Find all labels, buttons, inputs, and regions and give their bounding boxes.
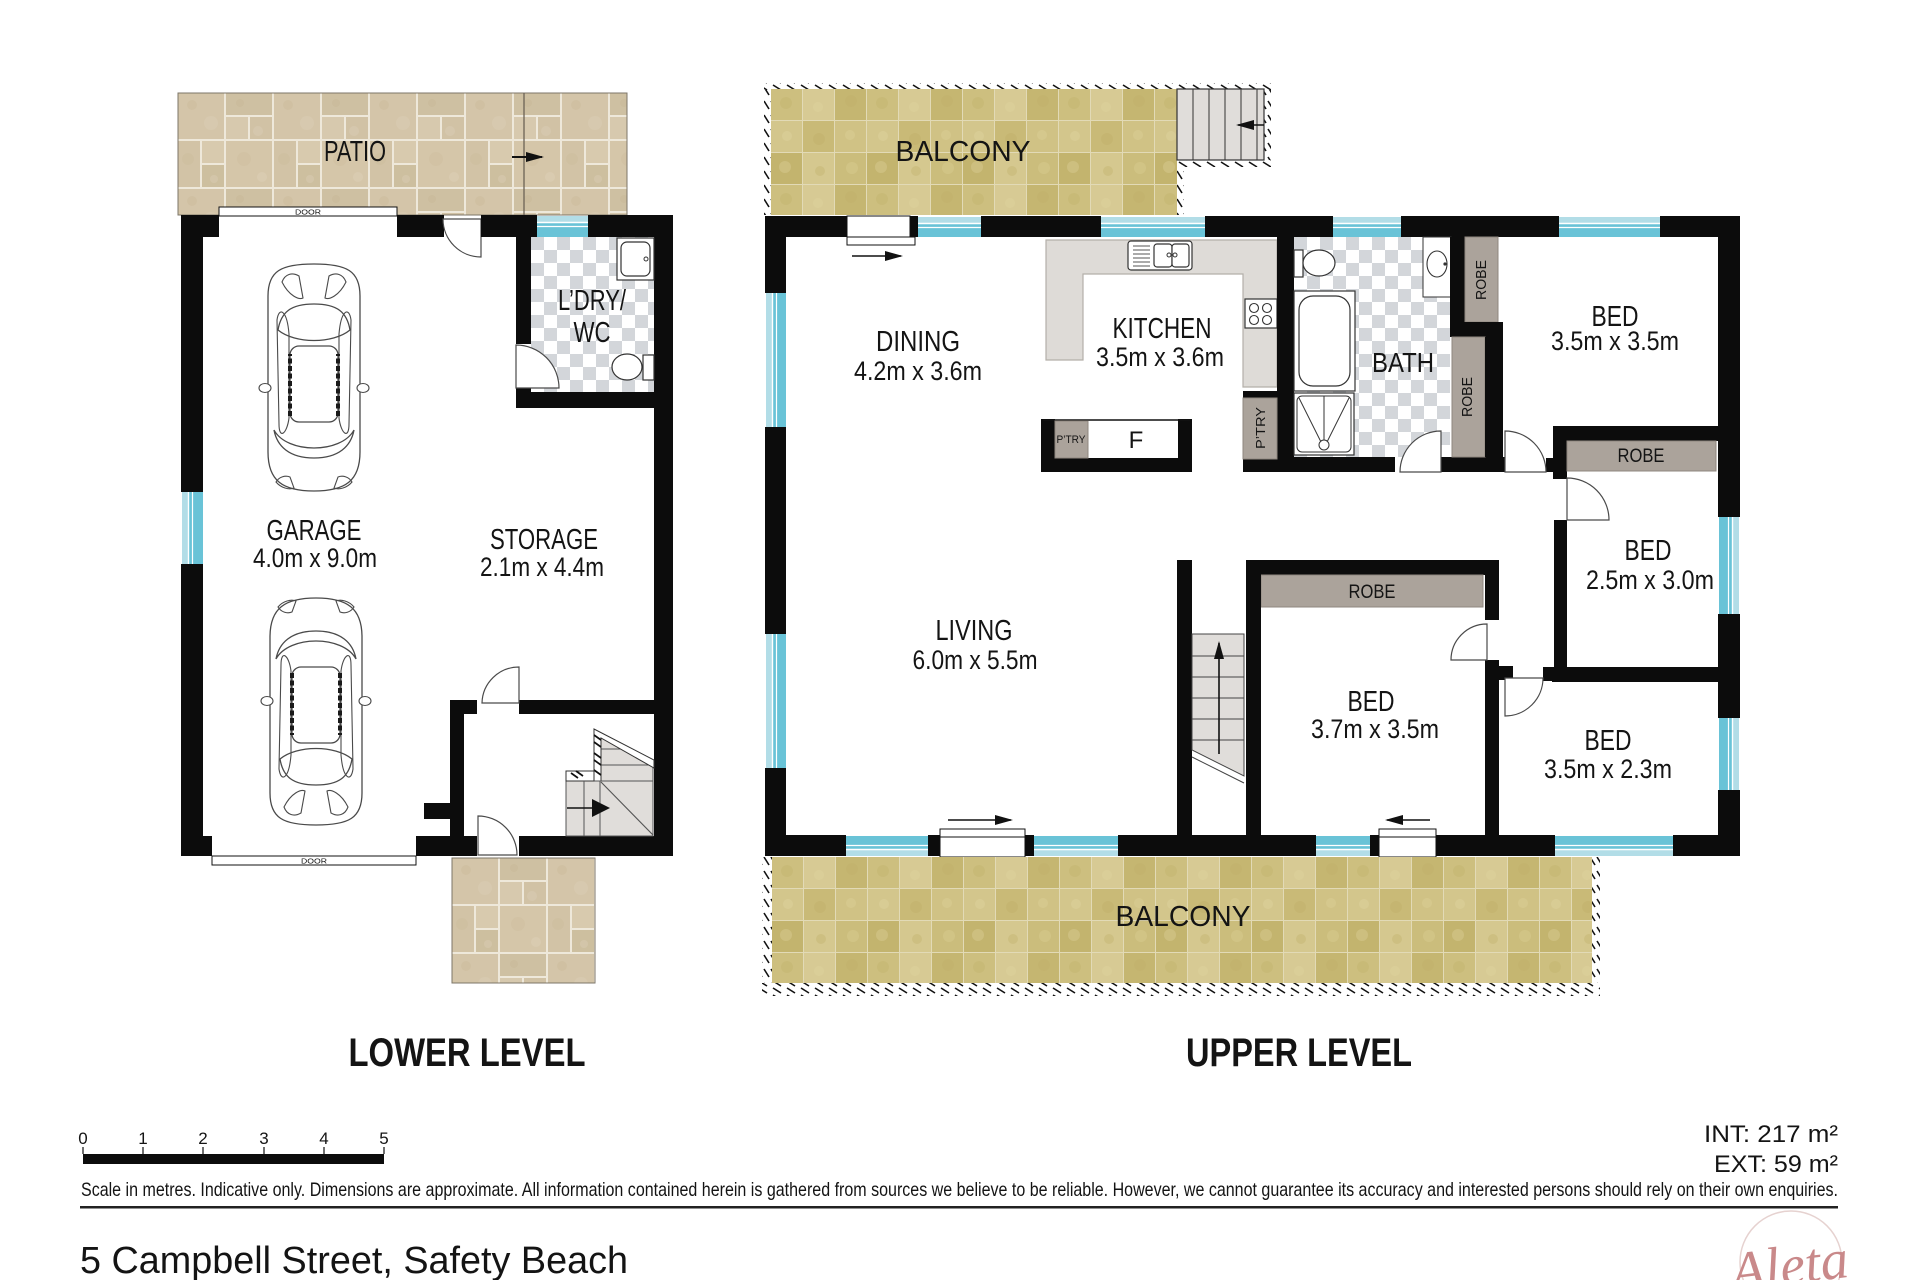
svg-text:UPPER LEVEL: UPPER LEVEL bbox=[1186, 1031, 1412, 1075]
svg-text:P’TRY: P’TRY bbox=[1253, 407, 1268, 449]
svg-text:4: 4 bbox=[319, 1129, 328, 1148]
svg-text:2.1m x 4.4m: 2.1m x 4.4m bbox=[480, 552, 604, 582]
svg-text:P’TRY: P’TRY bbox=[1057, 434, 1087, 446]
svg-text:1: 1 bbox=[138, 1129, 147, 1148]
svg-text:3.5m x 3.6m: 3.5m x 3.6m bbox=[1096, 342, 1224, 372]
svg-text:L’DRY/: L’DRY/ bbox=[558, 285, 627, 317]
svg-text:LOWER LEVEL: LOWER LEVEL bbox=[349, 1031, 586, 1075]
svg-text:BED: BED bbox=[1625, 535, 1672, 567]
svg-text:ROBE: ROBE bbox=[1473, 260, 1490, 300]
svg-text:BED: BED bbox=[1585, 725, 1632, 757]
svg-text:PATIO: PATIO bbox=[324, 136, 386, 168]
svg-text:KITCHEN: KITCHEN bbox=[1113, 313, 1212, 345]
svg-text:INT: 217 m²: INT: 217 m² bbox=[1704, 1121, 1838, 1148]
svg-text:DOOR: DOOR bbox=[295, 208, 322, 217]
svg-text:LIVING: LIVING bbox=[936, 615, 1013, 647]
svg-text:ROBE: ROBE bbox=[1459, 377, 1476, 417]
svg-text:DINING: DINING bbox=[876, 326, 960, 358]
svg-text:2: 2 bbox=[198, 1129, 207, 1148]
svg-text:6.0m x 5.5m: 6.0m x 5.5m bbox=[913, 645, 1038, 675]
svg-text:ROBE: ROBE bbox=[1349, 582, 1396, 603]
svg-text:BATH: BATH bbox=[1372, 347, 1434, 378]
svg-text:WC: WC bbox=[574, 317, 611, 349]
svg-text:3.5m x 2.3m: 3.5m x 2.3m bbox=[1544, 754, 1672, 784]
svg-text:2.5m x 3.0m: 2.5m x 3.0m bbox=[1586, 565, 1714, 595]
svg-text:BALCONY: BALCONY bbox=[896, 136, 1031, 168]
svg-text:4.0m x 9.0m: 4.0m x 9.0m bbox=[253, 543, 377, 573]
svg-text:0: 0 bbox=[78, 1129, 87, 1148]
svg-text:Scale in metres. Indicative on: Scale in metres. Indicative only. Dimens… bbox=[81, 1179, 1838, 1201]
svg-text:3: 3 bbox=[259, 1129, 268, 1148]
svg-text:ROBE: ROBE bbox=[1618, 446, 1665, 467]
svg-text:BALCONY: BALCONY bbox=[1116, 901, 1251, 933]
svg-text:DOOR: DOOR bbox=[301, 857, 328, 866]
svg-text:F: F bbox=[1129, 427, 1144, 454]
svg-text:5: 5 bbox=[379, 1129, 388, 1148]
svg-text:3.5m x 3.5m: 3.5m x 3.5m bbox=[1551, 326, 1679, 356]
svg-text:5 Campbell Street, Safety Beac: 5 Campbell Street, Safety Beach bbox=[80, 1240, 628, 1280]
svg-text:3.7m x 3.5m: 3.7m x 3.5m bbox=[1311, 714, 1439, 744]
svg-text:EXT: 59 m²: EXT: 59 m² bbox=[1714, 1151, 1838, 1178]
svg-text:4.2m x 3.6m: 4.2m x 3.6m bbox=[854, 356, 982, 386]
